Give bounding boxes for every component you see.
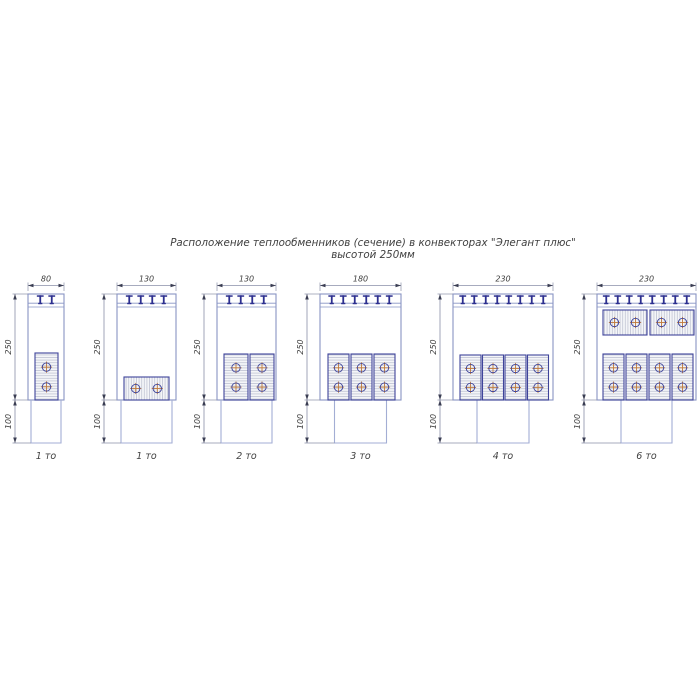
heat-exchanger [626,354,647,400]
heat-exchanger [528,355,549,400]
dimension-arrow [305,294,309,300]
heat-exchanger [505,355,526,400]
exchanger-fins [460,355,481,400]
clip-stem [651,295,653,304]
clip-foot [507,303,511,304]
dimension-arrow [102,294,106,300]
clip-foot [330,303,334,304]
clip-foot [639,303,643,304]
leg-dim-label: 100 [296,414,305,429]
leg-dim-label: 100 [193,414,202,429]
clip-stem [354,295,356,304]
dimension-arrow [582,395,586,401]
dimension-arrow [396,284,402,288]
clip-stem [508,295,510,304]
clip-stem [240,295,242,304]
dimension-arrow [597,284,603,288]
leg-dim-label: 100 [573,414,582,429]
drawing-title-line2: высотой 250мм [331,249,415,261]
clip-foot [341,303,345,304]
clip-foot [650,303,654,304]
clip-stem [263,295,265,304]
clip-foot [461,303,465,304]
diagram-label: 3 то [350,451,371,462]
width-dim-label: 230 [495,275,510,284]
convector-diagram-1: 802501001 то [4,275,64,463]
convector-diagram-3: 1302501002 то [193,275,276,463]
diagram-label: 1 то [36,451,57,462]
clip-foot [495,303,499,304]
clip-foot [364,303,368,304]
clip-stem [519,295,521,304]
convector-diagrams: 802501001 то1302501001 то1302501002 то18… [4,275,696,463]
clip-stem [140,295,142,304]
clip-foot [472,303,476,304]
dimension-arrow [13,294,17,300]
clip-foot [262,303,266,304]
heat-exchanger [649,354,670,400]
dimension-arrow [438,395,442,401]
clip-stem [462,295,464,304]
height-dim-label: 250 [296,339,305,354]
heat-exchanger [603,354,624,400]
exchanger-fins [626,354,647,400]
exchanger-fins [374,354,395,400]
diagram-label: 4 то [493,451,514,462]
heat-exchanger [603,310,647,335]
leg-dim-label: 100 [93,414,102,429]
clip-stem [674,295,676,304]
dimension-arrow [13,395,17,401]
heat-exchanger [672,354,693,400]
clip-foot [227,303,231,304]
clip-stem [542,295,544,304]
clip-foot [38,303,42,304]
exchanger-fins [672,354,693,400]
clip-foot [673,303,677,304]
dimension-arrow [117,284,123,288]
clip-foot [484,303,488,304]
dimension-arrow [13,400,17,406]
dimension-arrow [438,400,442,406]
dimension-arrow [271,284,277,288]
clip-stem [473,295,475,304]
clip-stem [163,295,165,304]
dimension-arrow [305,438,309,444]
clip-stem [251,295,253,304]
clip-stem [128,295,130,304]
clip-stem [663,295,665,304]
clip-foot [616,303,620,304]
diagram-label: 6 то [636,451,657,462]
clip-stem [485,295,487,304]
exchanger-fins [224,354,248,400]
height-dim-label: 250 [193,339,202,354]
dimension-arrow [582,400,586,406]
clip-stem [151,295,153,304]
leg-duct [121,400,172,443]
heat-exchanger [250,354,274,400]
dimension-arrow [102,438,106,444]
leg-duct [31,400,61,443]
exchanger-fins [649,354,670,400]
dimension-arrow [202,400,206,406]
heat-exchanger [224,354,248,400]
clip-foot [541,303,545,304]
convector-diagram-5: 2302501004 то [429,275,553,463]
heat-exchanger [650,310,694,335]
clip-foot [376,303,380,304]
exchanger-fins [505,355,526,400]
clip-foot [530,303,534,304]
clip-foot [162,303,166,304]
dimension-arrow [28,284,34,288]
exchanger-fins [328,354,349,400]
height-dim-label: 250 [4,339,13,354]
clip-foot [239,303,243,304]
heat-exchanger [35,353,58,400]
heat-exchanger [460,355,481,400]
clip-foot [250,303,254,304]
dimension-arrow [202,438,206,444]
clip-stem [496,295,498,304]
dimension-arrow [305,400,309,406]
clip-stem [39,295,41,304]
height-dim-label: 250 [93,339,102,354]
convector-diagram-6: 2302501006 то [573,275,696,463]
clip-foot [387,303,391,304]
dimension-arrow [102,395,106,401]
diagram-label: 2 то [236,451,257,462]
clip-stem [605,295,607,304]
diagram-label: 1 то [136,451,157,462]
clip-foot [685,303,689,304]
dimension-arrow [202,395,206,401]
heat-exchanger [351,354,372,400]
clip-stem [617,295,619,304]
leg-duct [621,400,672,443]
heat-exchanger [374,354,395,400]
heat-exchanger [328,354,349,400]
clip-foot [518,303,522,304]
exchanger-fins [528,355,549,400]
clip-foot [50,303,54,304]
dimension-arrow [102,400,106,406]
clip-foot [127,303,131,304]
clip-stem [342,295,344,304]
clip-foot [139,303,143,304]
heat-exchanger [124,377,169,400]
heat-exchanger [483,355,504,400]
exchanger-fins [35,353,58,400]
clip-stem [331,295,333,304]
dimension-arrow [320,284,326,288]
clip-foot [662,303,666,304]
clip-stem [51,295,53,304]
exchanger-fins [603,354,624,400]
dimension-arrow [453,284,459,288]
clip-foot [627,303,631,304]
clip-stem [686,295,688,304]
width-dim-label: 180 [353,275,368,284]
leg-dim-label: 100 [429,414,438,429]
width-dim-label: 230 [639,275,654,284]
leg-duct [335,400,387,443]
dimension-arrow [202,294,206,300]
dimension-arrow [548,284,554,288]
clip-stem [377,295,379,304]
convector-diagram-2: 1302501001 то [93,275,176,463]
drawing-sheet: Расположение теплообменников (сечение) в… [0,0,700,700]
dimension-arrow [305,395,309,401]
width-dim-label: 130 [239,275,254,284]
dimension-arrow [438,294,442,300]
clip-foot [353,303,357,304]
dimension-arrow [59,284,65,288]
dimension-arrow [691,284,697,288]
height-dim-label: 250 [573,339,582,354]
clip-stem [365,295,367,304]
dimension-arrow [217,284,223,288]
leg-dim-label: 100 [4,414,13,429]
clip-stem [531,295,533,304]
exchanger-fins [351,354,372,400]
exchanger-fins [483,355,504,400]
leg-duct [477,400,529,443]
leg-duct [221,400,272,443]
height-dim-label: 250 [429,339,438,354]
width-dim-label: 130 [139,275,154,284]
clip-stem [640,295,642,304]
clip-foot [604,303,608,304]
dimension-arrow [13,438,17,444]
width-dim-label: 80 [41,275,51,284]
drawing-title-line1: Расположение теплообменников (сечение) в… [170,237,576,249]
dimension-arrow [171,284,177,288]
convector-diagram-4: 1802501003 то [296,275,401,463]
clip-foot [150,303,154,304]
dimension-arrow [582,438,586,444]
exchanger-fins [250,354,274,400]
clip-stem [628,295,630,304]
dimension-arrow [582,294,586,300]
technical-drawing: Расположение теплообменников (сечение) в… [0,0,700,700]
clip-stem [228,295,230,304]
clip-stem [388,295,390,304]
dimension-arrow [438,438,442,444]
